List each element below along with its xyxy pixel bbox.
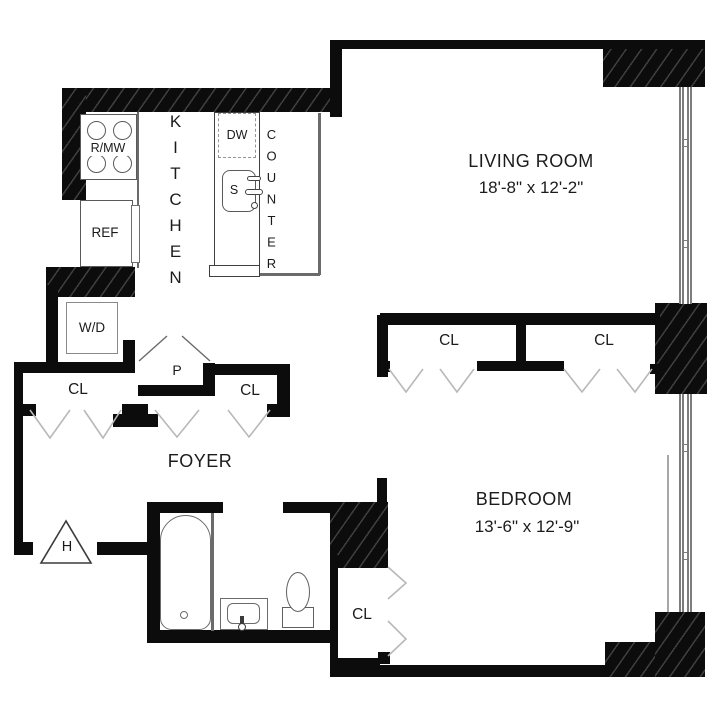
floor-plan: R/MW REF DW S W/D [0, 0, 720, 720]
burner-icon [113, 121, 132, 140]
wall-heat-left [14, 542, 33, 555]
wall-bedroom-closet-left [330, 555, 338, 675]
burner-icon [113, 154, 132, 173]
block-bedroom-closet-top [330, 502, 388, 568]
closet-bedroom-left-label: CL [439, 333, 459, 349]
window-mullion [684, 552, 687, 560]
bifold-door-icon [388, 621, 406, 656]
wall-bedroom-bottom [330, 665, 608, 677]
wall-closet-divider-t [477, 361, 564, 371]
wall-bedroom-separator-lower [377, 478, 387, 504]
bifold-door-icon [389, 369, 423, 392]
wall-top-step [330, 40, 342, 117]
closet-bedroom-right-label: CL [594, 333, 614, 349]
pantry-label: P [172, 363, 181, 377]
counter-edge-right [318, 113, 321, 275]
block-bottom-right-corner [655, 612, 705, 677]
jamb-foyer-closet-left [23, 404, 36, 416]
counter-label: COUNTER [265, 127, 278, 278]
wall-below-fridge [46, 267, 135, 297]
jamb-bedroom-closet-right [650, 364, 660, 374]
tub-divider-line [211, 513, 214, 631]
window-mullion [684, 444, 687, 452]
wall-bathroom-bottom [147, 630, 338, 643]
washer-dryer-label: W/D [79, 321, 105, 335]
wall-kitchen-top [64, 88, 342, 112]
range-label: R/MW [89, 141, 128, 156]
closet-bedroom-entry-label: CL [352, 607, 372, 623]
tub-drain-icon [180, 611, 188, 619]
living-room-dimensions: 18'-8" x 12'-2" [479, 179, 584, 196]
bifold-door-icon [564, 369, 600, 392]
sink-label: S [230, 184, 238, 197]
faucet-icon [247, 176, 261, 181]
wall-pantry-bottom [138, 385, 215, 396]
closet-foyer-right-label: CL [240, 383, 260, 399]
wall-bathroom-left [147, 502, 160, 643]
bedroom-dimensions: 13'-6" x 12'-9" [475, 518, 580, 535]
bifold-door-icon [388, 567, 406, 599]
living-room-window [679, 87, 692, 304]
block-bottom-right-step [605, 642, 657, 677]
wall-laundry-left [46, 285, 58, 373]
dishwasher-label: DW [227, 129, 248, 142]
bedroom-sill-line [667, 455, 669, 612]
faucet-icon [245, 189, 263, 195]
bifold-door-icon [617, 369, 652, 392]
burner-icon [87, 121, 106, 140]
jamb-foyer-closet-mid-b [113, 414, 158, 427]
pantry-door-icon [139, 336, 167, 361]
window-mullion [684, 139, 687, 147]
kitchen-island-end [209, 265, 260, 277]
faucet-knob-icon [251, 202, 258, 209]
foyer-label: FOYER [168, 452, 233, 470]
fridge-handle-icon [131, 205, 140, 263]
bifold-door-icon [228, 410, 270, 437]
jamb-foyer-closet2 [267, 404, 290, 417]
wall-heat-stub [97, 542, 148, 555]
bifold-door-icon [30, 410, 70, 438]
wall-top-right-run [330, 40, 705, 49]
window-mullion [684, 240, 687, 248]
bedroom-window [679, 394, 692, 612]
fridge-label: REF [92, 226, 119, 240]
heat-riser-label: H [62, 540, 72, 555]
toilet-bowl-icon [286, 572, 310, 612]
vanity-faucet-knob-icon [238, 623, 246, 631]
wall-laundry-right [123, 340, 135, 373]
closet-foyer-left-label: CL [68, 382, 88, 398]
pantry-door-icon [182, 336, 210, 361]
wall-left-outer [14, 362, 23, 553]
bedroom-label: BEDROOM [476, 490, 573, 508]
jamb-bedroom-closet-left [377, 361, 390, 372]
column-mid-right [655, 303, 707, 394]
bifold-door-icon [155, 410, 199, 437]
burner-icon [87, 154, 106, 173]
living-room-label: LIVING ROOM [468, 152, 594, 170]
wall-closet-divider-v [516, 318, 526, 365]
wall-bathroom-top-right [283, 502, 333, 513]
kitchen-label: KITCHEN [167, 112, 184, 294]
bifold-door-icon [440, 369, 474, 392]
wall-foyer-top [14, 362, 135, 373]
